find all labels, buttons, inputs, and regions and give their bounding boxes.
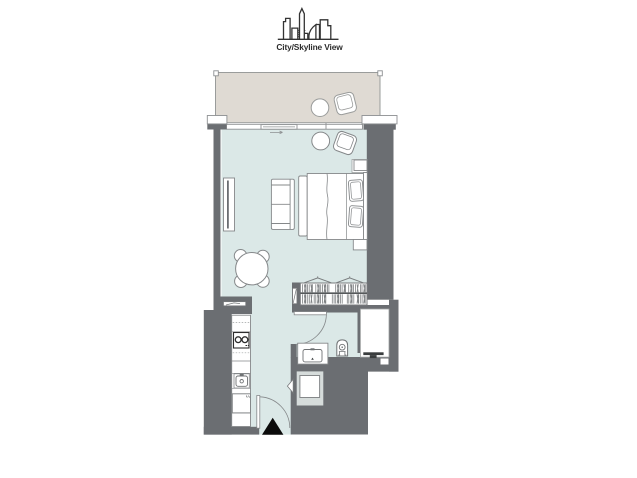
svg-text:City/Skyline View: City/Skyline View [276,42,343,52]
